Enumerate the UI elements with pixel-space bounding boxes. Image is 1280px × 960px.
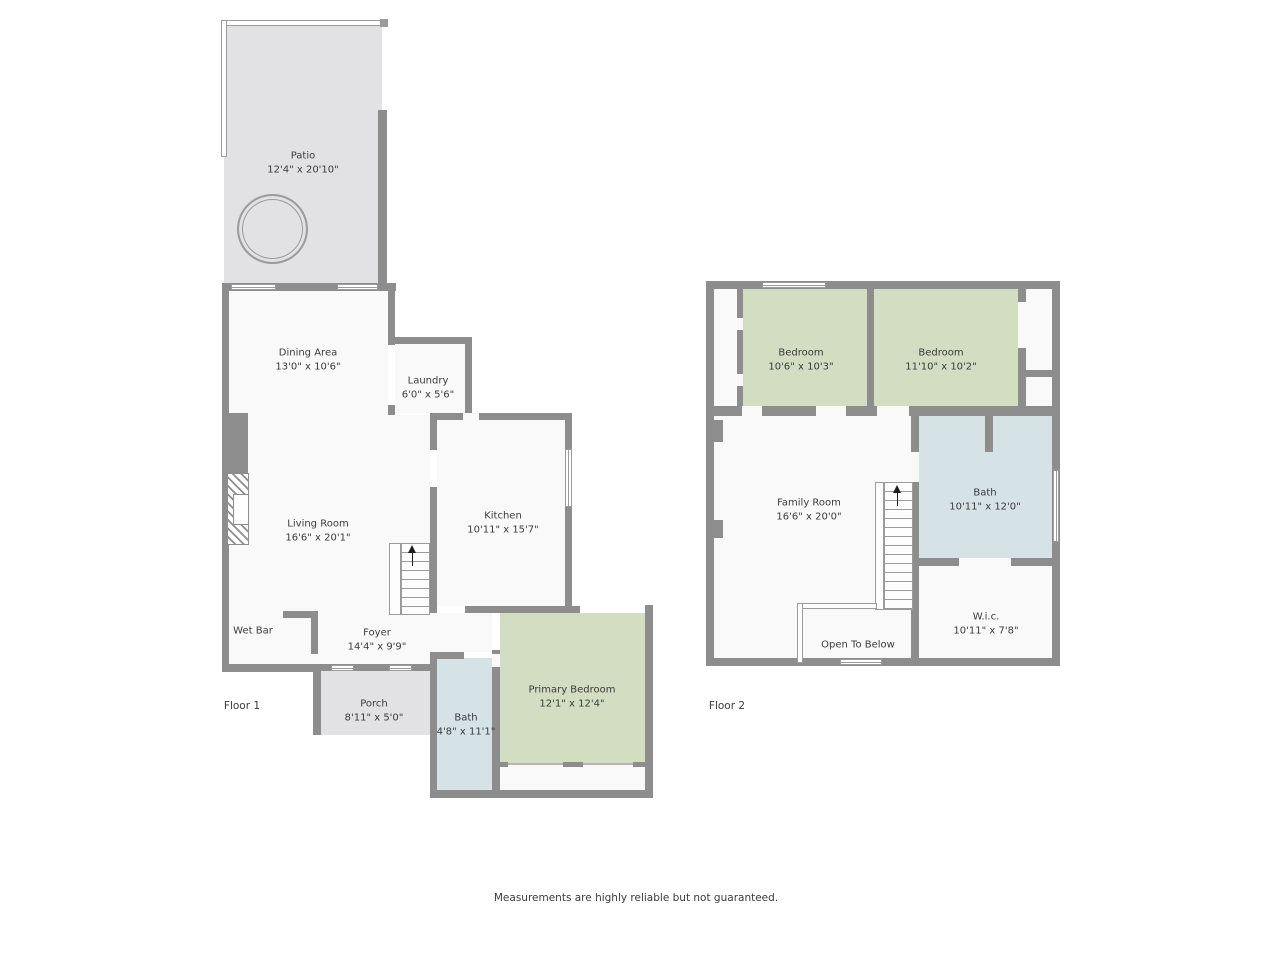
- wall-segment: [706, 281, 714, 666]
- window: [762, 282, 826, 288]
- room-name: Bath: [949, 487, 1021, 501]
- room-dims: 11'10" x 10'2": [905, 360, 977, 374]
- chimney-block: [229, 413, 248, 473]
- wall-segment: [378, 110, 387, 287]
- room-dims: 8'11" x 5'0": [345, 711, 404, 725]
- wall-segment: [465, 606, 580, 613]
- stairs-rail: [389, 543, 401, 615]
- room-dims: 13'0" x 10'6": [275, 360, 340, 374]
- room-name: Family Room: [776, 497, 841, 511]
- wall-segment: [283, 611, 318, 618]
- wall-segment: [388, 337, 472, 344]
- open-to-below-railing: [797, 603, 803, 663]
- door-opening: [877, 406, 909, 416]
- door-opening: [816, 406, 846, 416]
- room-dims: 12'1" x 12'4": [528, 697, 615, 711]
- room-label-foyer: Foyer 14'4" x 9'9": [348, 627, 407, 654]
- room-label-bedroom-right: Bedroom 11'10" x 10'2": [905, 347, 977, 374]
- window: [389, 665, 412, 671]
- window: [840, 659, 882, 665]
- door-opening: [959, 558, 1011, 566]
- wall-segment: [737, 289, 743, 406]
- stairs: [884, 482, 913, 610]
- room-name: Primary Bedroom: [528, 684, 615, 698]
- stairs: [401, 543, 430, 615]
- door-opening: [492, 654, 500, 667]
- wall-segment: [430, 652, 464, 659]
- door-opening: [737, 374, 743, 386]
- wall-segment: [500, 762, 508, 767]
- door-opening: [911, 452, 919, 482]
- room-name: Laundry: [402, 375, 454, 389]
- door-opening: [737, 318, 743, 330]
- patio-railing: [221, 20, 388, 26]
- floor2-label: Floor 2: [709, 700, 745, 712]
- room-dims: 16'6" x 20'0": [776, 510, 841, 524]
- stairs-arrow-stem: [897, 492, 898, 506]
- room-label-laundry: Laundry 6'0" x 5'6": [402, 375, 454, 402]
- wall-segment: [311, 618, 318, 654]
- wall-segment: [388, 283, 395, 345]
- patio-railing: [221, 20, 227, 157]
- window: [337, 284, 378, 290]
- room-dims: 6'0" x 5'6": [402, 388, 454, 402]
- room-label-dining-area: Dining Area 13'0" x 10'6": [275, 347, 340, 374]
- window: [1053, 470, 1059, 542]
- fireplace-firebox: [233, 494, 249, 525]
- wall-segment: [430, 790, 653, 798]
- wall-segment: [563, 762, 583, 767]
- room-dims: 14'4" x 9'9": [348, 640, 407, 654]
- room-label-bath2: Bath 10'11" x 12'0": [949, 487, 1021, 514]
- wall-segment: [645, 605, 653, 798]
- door-opening: [1018, 302, 1026, 348]
- room-name: Wet Bar: [233, 624, 273, 638]
- spa-circle: [237, 194, 308, 264]
- measurements-disclaimer: Measurements are highly reliable but not…: [494, 892, 778, 904]
- wall-segment: [430, 413, 437, 450]
- room-name: Patio: [267, 150, 339, 164]
- wall-segment: [313, 664, 321, 735]
- room-label-wic: W.i.c. 10'11" x 7'8": [953, 611, 1018, 638]
- wall-segment: [388, 405, 395, 415]
- room-label-patio: Patio 12'4" x 20'10": [267, 150, 339, 177]
- wall-segment: [1018, 370, 1052, 377]
- room-label-open-to-below: Open To Below: [821, 638, 895, 652]
- window: [331, 665, 354, 671]
- stairs-rail: [875, 482, 884, 610]
- wall-segment: [706, 281, 1060, 289]
- patio-railing-cap: [380, 19, 388, 27]
- wall-segment: [867, 285, 874, 406]
- wall-segment: [985, 416, 993, 452]
- wall-segment: [430, 413, 572, 420]
- room-name: Open To Below: [821, 638, 895, 652]
- floor1-label: Floor 1: [224, 700, 260, 712]
- room-dims: 10'11" x 12'0": [949, 500, 1021, 514]
- room-name: Bedroom: [768, 347, 833, 361]
- room-label-bedroom-left: Bedroom 10'6" x 10'3": [768, 347, 833, 374]
- room-label-kitchen: Kitchen 10'11" x 15'7": [467, 510, 539, 537]
- wall-segment: [706, 658, 1060, 666]
- room-name: Kitchen: [467, 510, 539, 524]
- wall-segment: [706, 420, 723, 442]
- room-dims: 12'4" x 20'10": [267, 163, 339, 177]
- primary-walkway-area: [500, 763, 645, 790]
- room-label-primary-bedroom: Primary Bedroom 12'1" x 12'4": [528, 684, 615, 711]
- wall-segment: [222, 664, 318, 672]
- stairs-arrow-stem: [412, 552, 413, 566]
- room-label-porch: Porch 8'11" x 5'0": [345, 698, 404, 725]
- room-dims: 16'6" x 20'1": [285, 531, 350, 545]
- room-name: Porch: [345, 698, 404, 712]
- room-dims: 10'11" x 15'7": [467, 523, 539, 537]
- room-dims: 10'11" x 7'8": [953, 624, 1018, 638]
- room-name: Bedroom: [905, 347, 977, 361]
- window: [231, 284, 276, 290]
- wall-segment: [706, 520, 723, 538]
- open-to-below-railing: [797, 603, 877, 609]
- room-label-family-room: Family Room 16'6" x 20'0": [776, 497, 841, 524]
- room-dims: 4'8" x 11'1": [437, 725, 496, 739]
- hall-area: [430, 613, 492, 652]
- window: [565, 449, 572, 507]
- room-dims: 10'6" x 10'3": [768, 360, 833, 374]
- room-name: W.i.c.: [953, 611, 1018, 625]
- room-label-living-room: Living Room 16'6" x 20'1": [285, 518, 350, 545]
- wall-segment: [633, 762, 645, 767]
- wall-segment: [465, 337, 472, 420]
- room-label-wet-bar: Wet Bar: [233, 624, 273, 638]
- wall-segment: [430, 487, 437, 613]
- door-opening: [742, 406, 762, 416]
- room-name: Bath: [437, 712, 496, 726]
- door-opening: [463, 413, 479, 420]
- room-name: Dining Area: [275, 347, 340, 361]
- wall-segment: [565, 413, 572, 613]
- room-label-bath1: Bath 4'8" x 11'1": [437, 712, 496, 739]
- room-name: Living Room: [285, 518, 350, 532]
- floor-plan: Patio 12'4" x 20'10" Dining Area 13'0" x…: [0, 0, 1280, 960]
- room-name: Foyer: [348, 627, 407, 641]
